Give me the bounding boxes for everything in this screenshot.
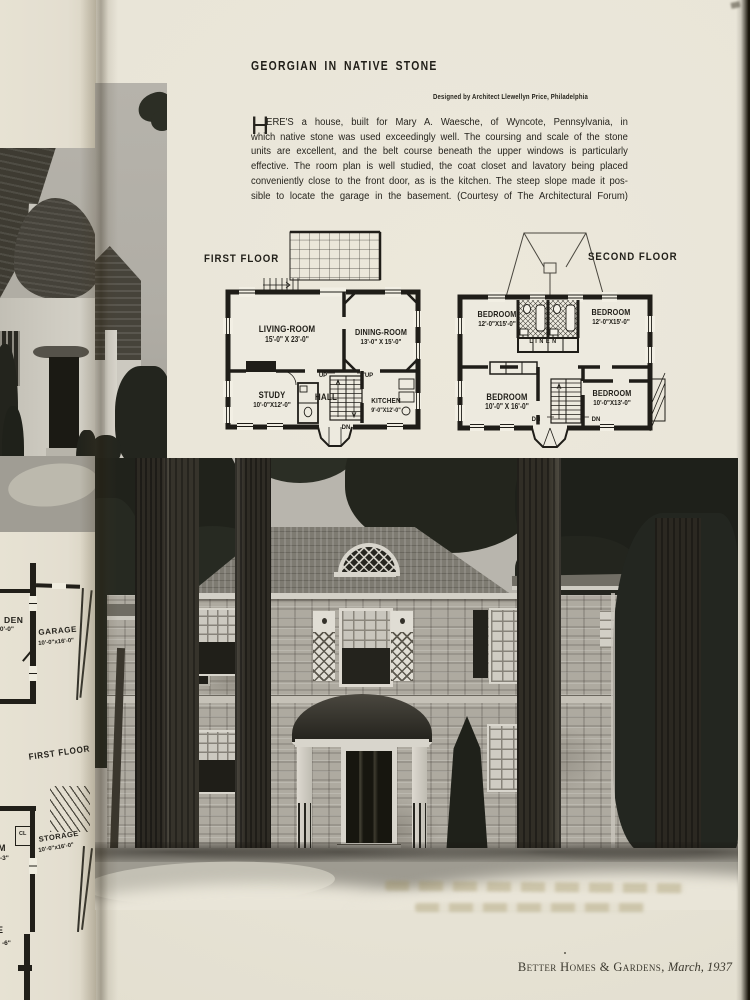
lp-fragment-room2-dims: -6" [2, 940, 11, 947]
tree-trunk [135, 458, 171, 878]
lp-plan-wall [18, 965, 32, 971]
magazine-spread: DEN 0"x10'-0" GARAGE 10'-0"x16'-0" FIRST… [0, 0, 750, 1000]
page-right-edge [736, 0, 750, 1000]
lp-plan-wall [0, 589, 31, 593]
footer-dot [564, 952, 566, 954]
porch-entablature [295, 739, 429, 747]
page-title: GEORGIAN IN NATIVE STONE [251, 58, 438, 73]
lp-plan-window [52, 583, 66, 589]
room-label-bedroom-ne: BEDROOM 12'-0"X15'-0" [577, 307, 645, 326]
lp-plan-window [29, 666, 37, 681]
body-line-5: conveniently close to the front door, as… [251, 175, 628, 190]
body-line-3: units are excellent, and the belt course… [251, 145, 628, 160]
stair-label-dn: DN [592, 417, 601, 423]
room-label-bedroom-sw: BEDROOM 10'-0" X 16'-0" [467, 392, 547, 411]
body-paragraph: ERE'S a house, built for Mary A. Waesche… [251, 116, 628, 204]
left-page: DEN 0"x10'-0" GARAGE 10'-0"x16'-0" FIRST… [0, 0, 96, 1000]
stair-label-dn: DN [532, 417, 541, 423]
front-door [346, 751, 392, 843]
center-window-lower [339, 648, 393, 687]
body-line-1: ERE'S a house, built for Mary A. Waesche… [251, 116, 628, 131]
room-dims-den: 0"x10'-0" [0, 626, 14, 633]
footer-magazine-title: Better Homes & Gardens, [518, 960, 665, 974]
lp-closet-label: CL [19, 831, 26, 837]
footer-issue-date: March, 1937 [668, 960, 732, 974]
foliage-mass [95, 435, 121, 460]
stair-label-dn: DN [342, 425, 351, 431]
gable-roof [95, 246, 141, 362]
stair-label-up: UP [365, 373, 373, 379]
room-dims-garage: 10'-0"x16'-0" [38, 638, 74, 647]
shutter-ornament [400, 618, 405, 624]
tree-trunk [655, 518, 701, 878]
room-label-dining-room: DINING-ROOM 13'-0" X 15'-0" [344, 327, 418, 346]
tudor-door [49, 357, 79, 450]
tree-trunk [169, 458, 199, 878]
shutter-ornament [322, 618, 327, 624]
show-through-text [415, 903, 645, 912]
tree-trunk [517, 458, 561, 878]
first-floor-label: FIRST FLOOR [204, 253, 279, 265]
lp-fragment-room-dims: -3" [0, 855, 9, 862]
room-dims-storage: 10'-0"x16'-0" [38, 842, 74, 854]
gutter-photo-strip [95, 83, 167, 460]
fanlight-sill [334, 572, 396, 577]
body-line-2: which native stone was used exceedingly … [251, 131, 628, 146]
ground-shadows [95, 842, 738, 862]
byline: Designed by Architect Llewellyn Price, P… [433, 92, 588, 101]
foliage-mass [115, 366, 167, 460]
lp-roof-hatch [50, 786, 90, 832]
lower-window-right [487, 724, 519, 792]
cornice [183, 593, 517, 599]
stair-label-up: UP [319, 373, 327, 379]
tree-trunk [235, 458, 271, 878]
lp-plan-wall [0, 699, 36, 704]
room-label-study: STUDY 10'-0"X12'-0" [243, 390, 301, 409]
leaf-silhouette [151, 111, 167, 131]
room-label-hall: HALL [306, 393, 346, 403]
lp-fragment-room2: GE [0, 925, 3, 935]
room-label-linen: LINEN [525, 337, 563, 347]
body-line-6: sible to locate the garage in the baseme… [251, 190, 628, 205]
upper-window-right [489, 608, 520, 684]
body-line-4: effective. The room plan is well studied… [251, 160, 628, 175]
room-label-bedroom-nw: BEDROOM 12'-0"X15'-0" [464, 309, 530, 328]
lp-plan-window [29, 858, 37, 874]
left-page-photo [0, 148, 96, 532]
room-label-garage: GARAGE [38, 625, 77, 637]
lp-first-floor-label: FIRST FLOOR [28, 743, 91, 762]
room-label-living-room: LIVING-ROOM 15'-0" X 23'-0" [235, 325, 339, 344]
room-label-kitchen: KITCHEN 9'-0"X12'-0" [362, 396, 410, 415]
footer-credit: Better Homes & Gardens, March, 1937 [430, 960, 732, 975]
house-photograph [95, 458, 738, 910]
quoin-downspout [611, 593, 615, 858]
lp-fragment-room: M [0, 843, 6, 853]
room-label-den: DEN [4, 615, 23, 625]
room-label-bedroom-se: BEDROOM 10'-0"X13'-0" [577, 388, 647, 407]
lp-plan-window [29, 596, 37, 611]
dark-shutter [473, 610, 488, 678]
second-floor-label: SECOND FLOOR [588, 251, 678, 263]
